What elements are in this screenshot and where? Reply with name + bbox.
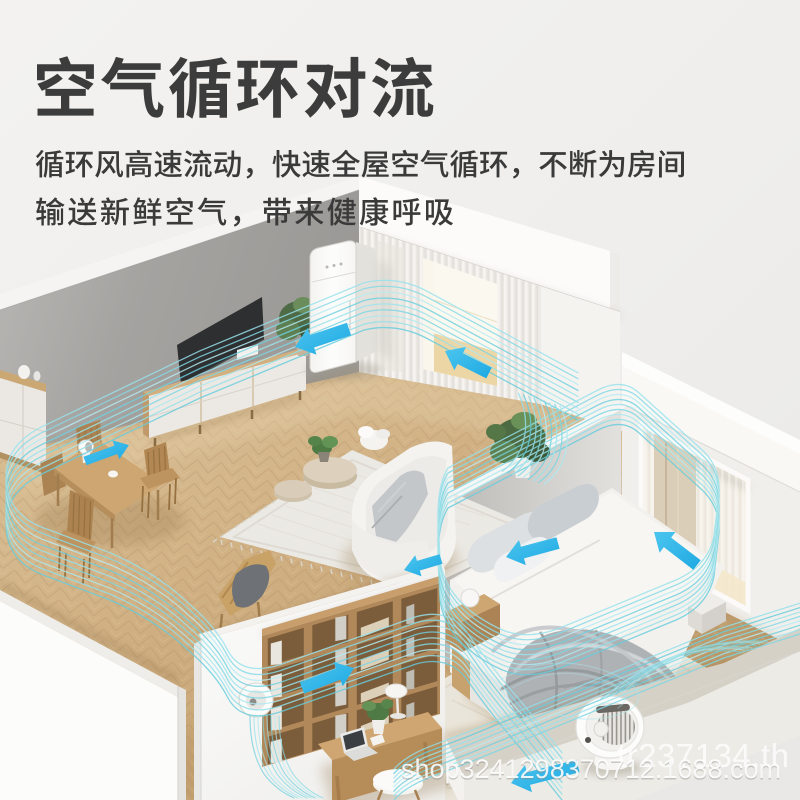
svg-text:shop3241298370712.1688.com: shop3241298370712.1688.com	[401, 754, 781, 784]
